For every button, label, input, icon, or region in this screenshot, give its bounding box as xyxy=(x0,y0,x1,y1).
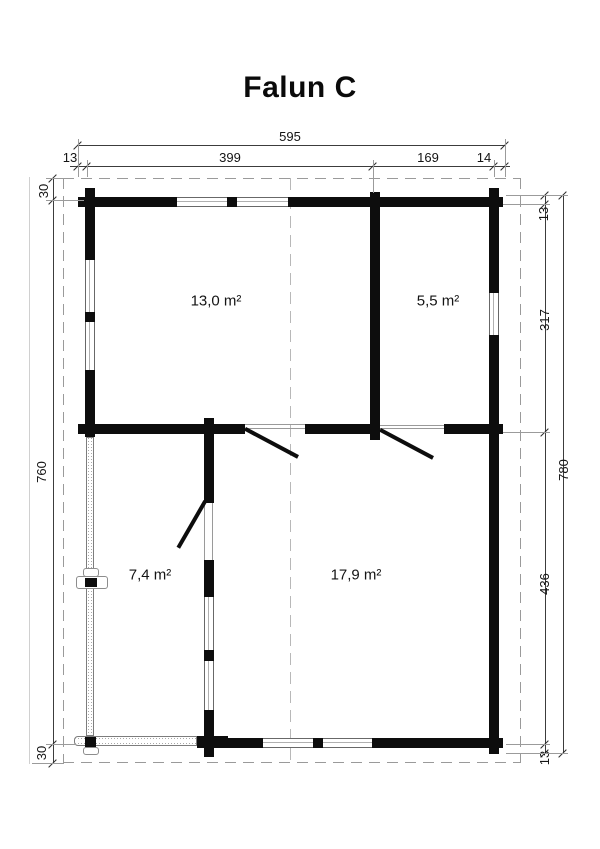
extension-line xyxy=(78,139,79,177)
wall-segment xyxy=(288,197,503,207)
dimension-label-30-bottom: 30 xyxy=(35,746,49,760)
extension-line xyxy=(87,160,88,177)
window xyxy=(85,322,95,370)
window xyxy=(323,738,372,748)
extension-line xyxy=(503,432,550,433)
door-opening-line xyxy=(380,428,444,429)
room-label-17-9: 17,9 m² xyxy=(331,567,382,584)
roof-overhang-outline-bottom xyxy=(63,762,521,763)
dimension-label-399: 399 xyxy=(219,151,241,165)
wall-segment xyxy=(489,335,499,754)
extension-line xyxy=(506,195,568,196)
wall-segment xyxy=(197,736,228,748)
wall-segment xyxy=(305,424,380,434)
wall-segment xyxy=(78,424,245,434)
door-opening-line xyxy=(245,424,305,425)
room-label-5-5: 5,5 m² xyxy=(417,293,460,310)
ridge-line xyxy=(290,178,291,763)
window xyxy=(204,597,214,650)
dimension-label-760: 760 xyxy=(35,461,49,483)
door-opening-line xyxy=(380,425,444,426)
room-label-7-4: 7,4 m² xyxy=(129,567,172,584)
wall-segment xyxy=(85,312,95,322)
sheet-frame-line xyxy=(29,177,30,764)
dimension-label-595: 595 xyxy=(279,130,301,144)
extension-line xyxy=(373,160,374,193)
wall-segment xyxy=(313,738,323,748)
dimension-line xyxy=(70,166,510,167)
door-opening-line xyxy=(245,428,305,429)
window xyxy=(85,260,95,312)
wall-segment xyxy=(227,197,237,207)
dimension-line xyxy=(53,178,54,763)
room-label-13-0: 13,0 m² xyxy=(191,293,242,310)
wall-segment xyxy=(370,192,380,440)
extension-line xyxy=(506,744,550,745)
railing-post-cap xyxy=(83,568,99,577)
window xyxy=(489,293,499,335)
dimension-label-30-top: 30 xyxy=(37,184,51,198)
wall-segment xyxy=(372,738,503,748)
page-title: Falun C xyxy=(0,71,600,105)
railing-post xyxy=(85,578,97,587)
dimension-label-317: 317 xyxy=(538,309,552,331)
extension-line xyxy=(46,744,76,745)
window xyxy=(237,197,288,207)
door-swing xyxy=(177,500,207,549)
dimension-label-780: 780 xyxy=(557,459,571,481)
dimension-label-13: 13 xyxy=(63,151,77,165)
dimension-label-14: 14 xyxy=(477,151,491,165)
dimension-line xyxy=(545,195,546,753)
wall-segment xyxy=(489,188,499,293)
railing-post-cap xyxy=(83,747,99,755)
wall-segment xyxy=(204,650,214,661)
floor-plan-sheet: Falun C xyxy=(0,0,600,849)
roof-overhang-outline-top xyxy=(63,178,521,179)
window xyxy=(177,197,227,207)
extension-line xyxy=(503,204,550,205)
wall-segment xyxy=(204,710,214,757)
dimension-label-436: 436 xyxy=(538,573,552,595)
wall-segment xyxy=(204,418,214,503)
door-swing xyxy=(379,428,434,460)
wall-segment xyxy=(85,188,95,260)
dimension-label-13-right-top: 13 xyxy=(537,207,551,221)
roof-overhang-outline-right xyxy=(520,178,521,763)
window xyxy=(204,661,214,710)
railing-post xyxy=(85,737,96,747)
extension-line xyxy=(505,139,506,177)
roof-overhang-outline-left xyxy=(63,178,64,763)
wall-segment xyxy=(444,424,503,434)
extension-line xyxy=(506,753,568,754)
extension-line xyxy=(46,178,64,179)
extension-line xyxy=(32,763,64,764)
extension-line xyxy=(46,200,84,201)
door-opening-line xyxy=(212,503,213,560)
dimension-label-169: 169 xyxy=(417,151,439,165)
door-opening-line xyxy=(204,503,205,560)
extension-line xyxy=(494,160,495,177)
dimension-line xyxy=(78,145,505,146)
window xyxy=(263,738,313,748)
wall-segment xyxy=(204,560,214,597)
